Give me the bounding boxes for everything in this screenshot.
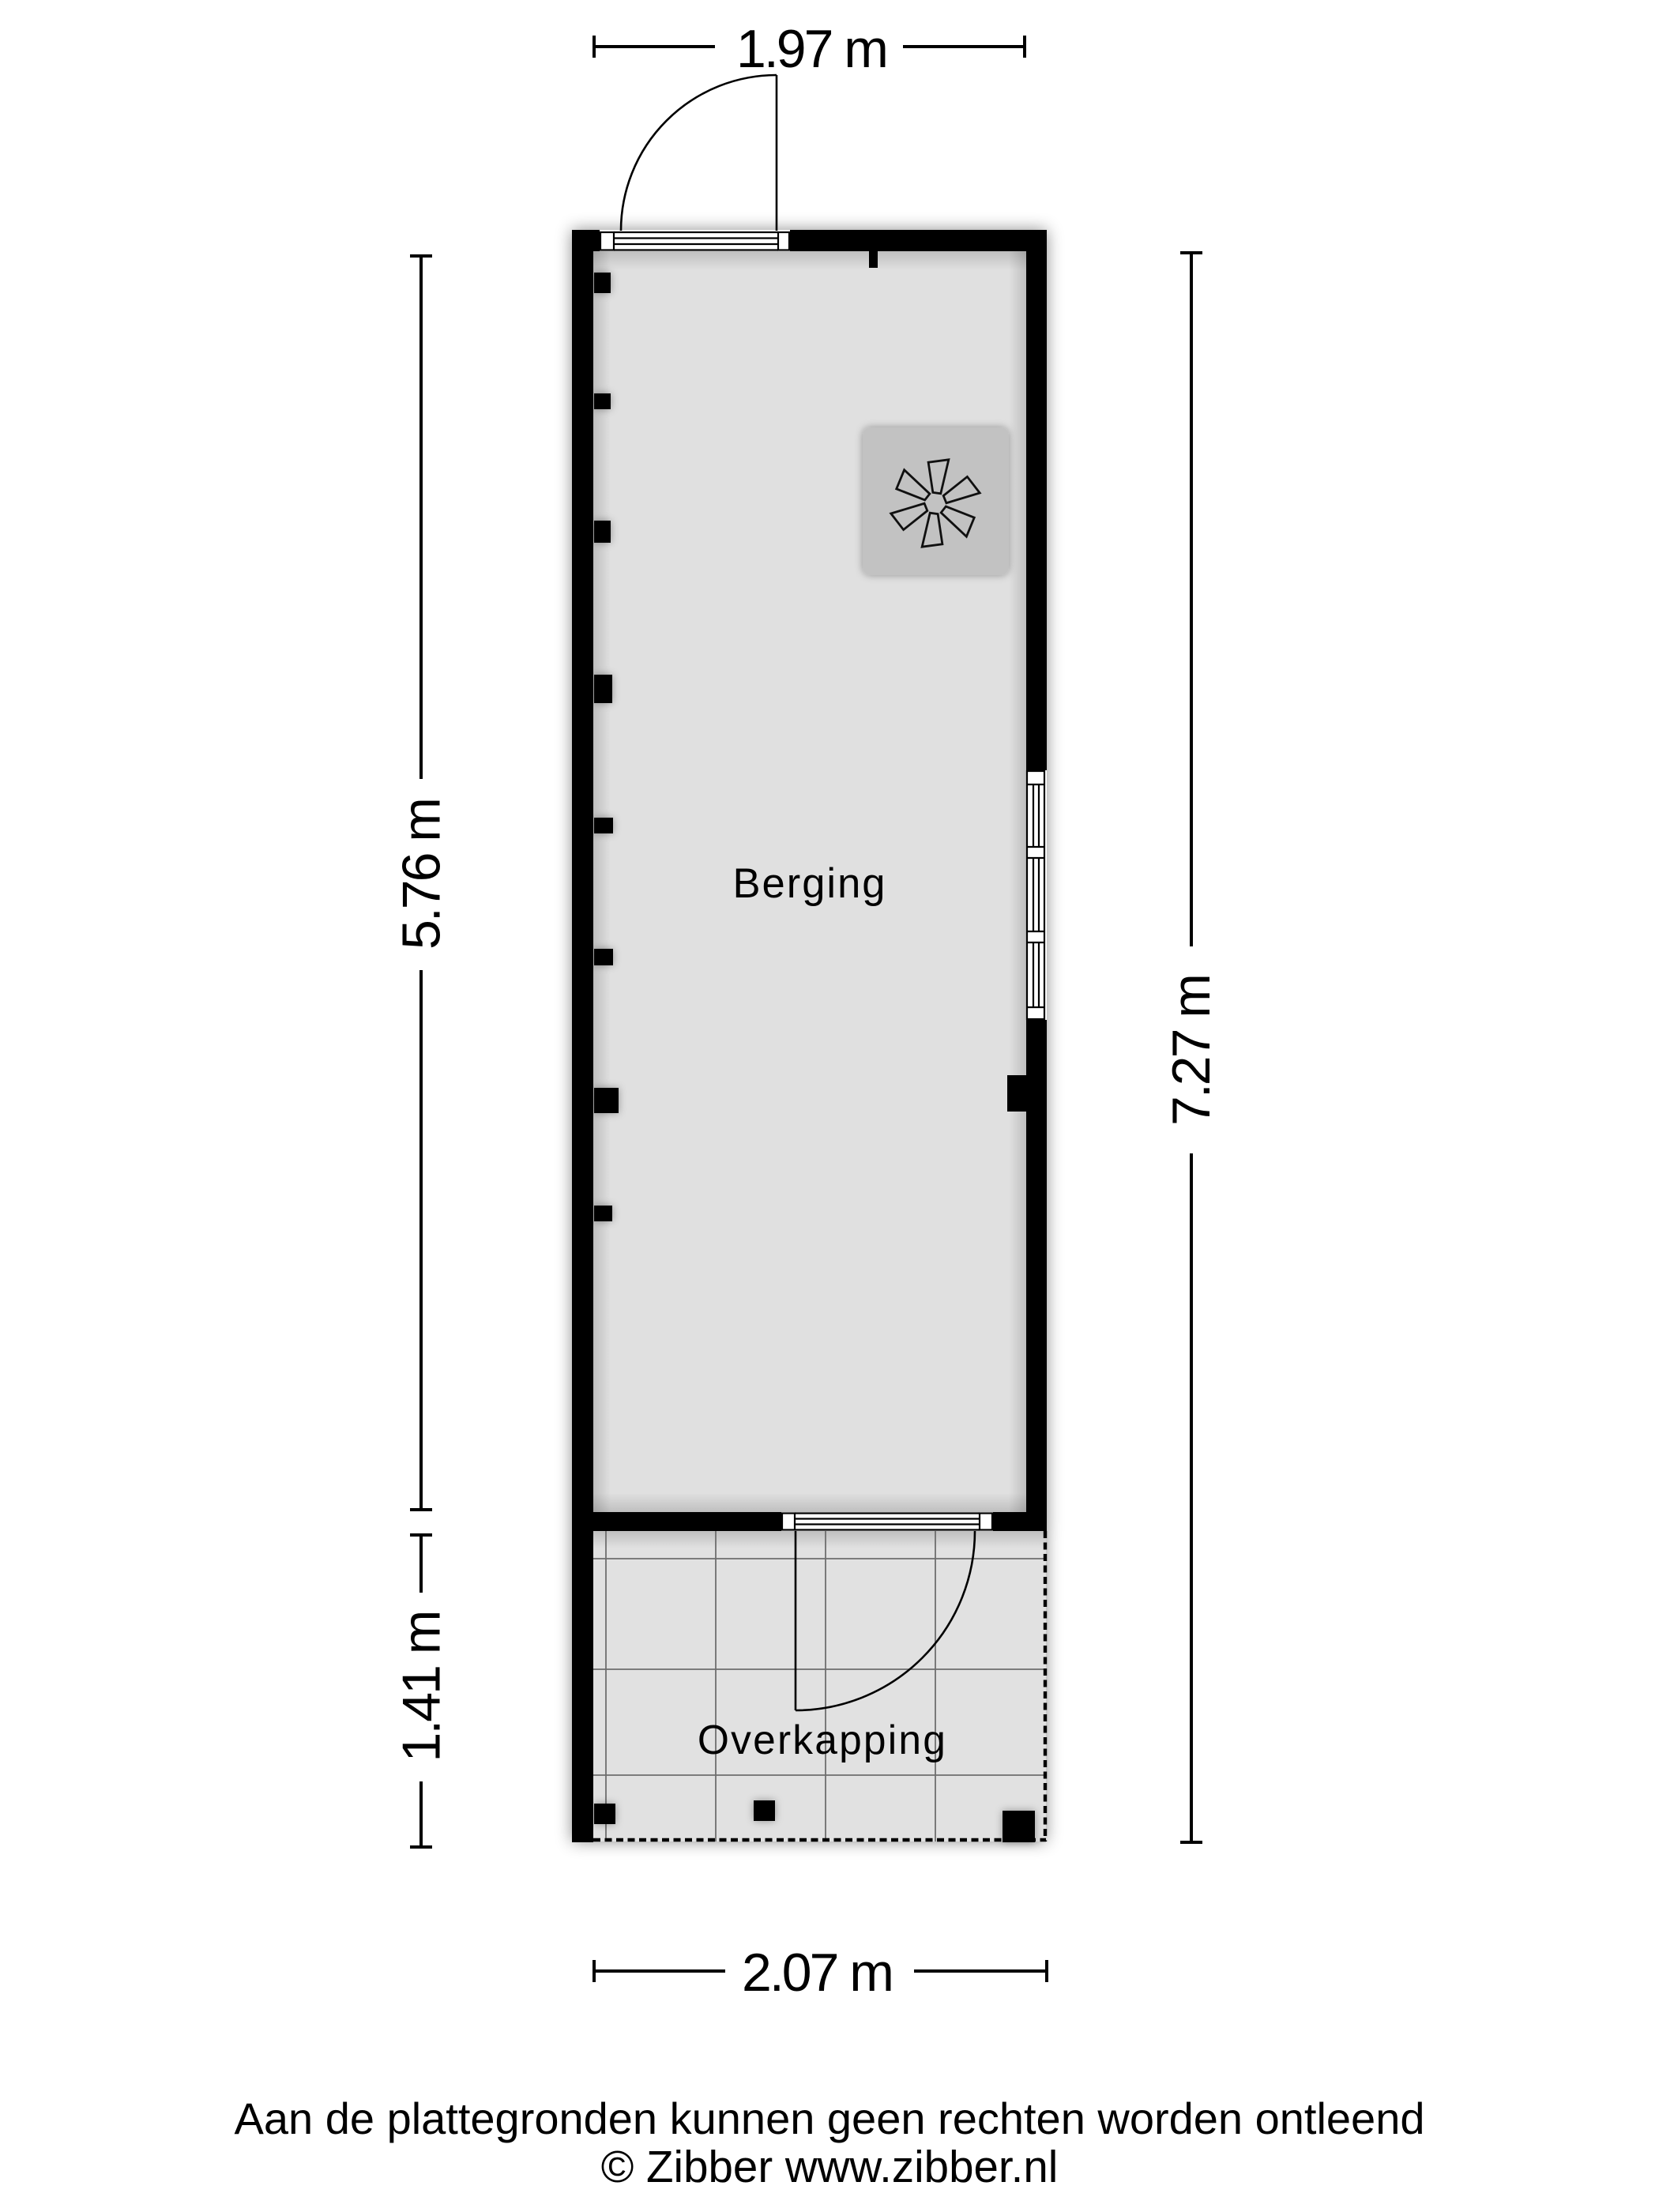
- svg-text:1.97 m: 1.97 m: [736, 19, 886, 79]
- svg-text:7.27 m: 7.27 m: [1161, 976, 1221, 1126]
- svg-text:© Zibber www.zibber.nl: © Zibber www.zibber.nl: [601, 2142, 1059, 2191]
- svg-text:Berging: Berging: [733, 860, 887, 907]
- svg-text:2.07 m: 2.07 m: [742, 1943, 892, 2003]
- svg-text:1.41 m: 1.41 m: [392, 1612, 452, 1762]
- svg-text:Aan de plattegronden kunnen ge: Aan de plattegronden kunnen geen rechten…: [235, 2093, 1425, 2143]
- svg-text:Overkapping: Overkapping: [698, 1717, 947, 1762]
- svg-text:5.76 m: 5.76 m: [392, 799, 452, 950]
